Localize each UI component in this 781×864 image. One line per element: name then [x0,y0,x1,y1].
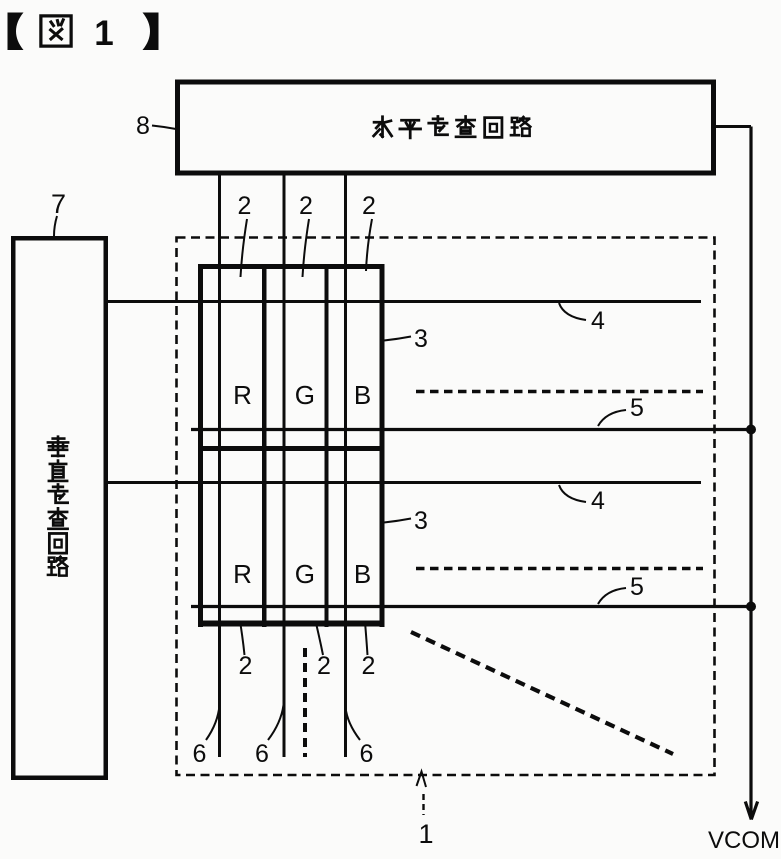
svg-text:1: 1 [94,14,113,53]
svg-text:3: 3 [414,507,428,535]
svg-text:2: 2 [299,192,313,220]
svg-text:2: 2 [362,652,376,680]
svg-text:6: 6 [255,740,269,768]
svg-text:4: 4 [591,487,605,515]
svg-text:5: 5 [630,573,644,601]
svg-text:5: 5 [630,394,644,422]
svg-text:7: 7 [51,189,66,219]
svg-text:6: 6 [193,740,207,768]
svg-text:B: B [354,380,371,410]
svg-text:4: 4 [591,307,605,335]
svg-text:B: B [354,559,371,589]
svg-text:2: 2 [317,652,331,680]
svg-text:R: R [233,559,252,589]
svg-text:VCOM: VCOM [708,827,780,854]
svg-text:1: 1 [418,819,433,849]
svg-text:6: 6 [360,740,374,768]
svg-text:3: 3 [414,325,428,353]
svg-text:G: G [295,559,315,589]
svg-text:2: 2 [238,192,252,220]
svg-text:8: 8 [136,112,150,140]
svg-text:G: G [295,380,315,410]
svg-text:2: 2 [362,192,376,220]
svg-text:R: R [233,380,252,410]
svg-text:2: 2 [239,652,253,680]
